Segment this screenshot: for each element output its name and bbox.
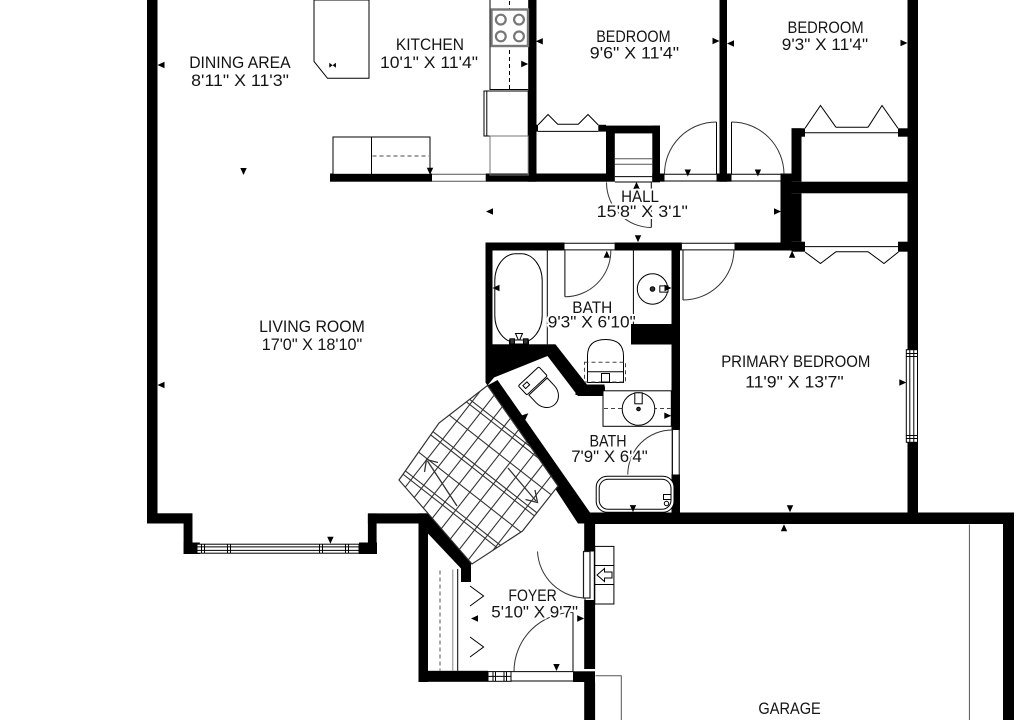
svg-text:8'11" X 11'3": 8'11" X 11'3" xyxy=(191,71,289,90)
svg-text:7'9" X 6'4": 7'9" X 6'4" xyxy=(571,447,648,466)
svg-text:9'3" X 11'4": 9'3" X 11'4" xyxy=(782,35,868,54)
svg-text:15'8" X 3'1": 15'8" X 3'1" xyxy=(597,202,688,221)
svg-text:DINING AREA: DINING AREA xyxy=(189,53,291,72)
svg-text:11'9" X 13'7": 11'9" X 13'7" xyxy=(745,373,844,392)
svg-text:10'1" X 11'4": 10'1" X 11'4" xyxy=(380,53,478,72)
svg-text:17'0" X 18'10": 17'0" X 18'10" xyxy=(262,335,363,354)
svg-text:9'6" X 11'4": 9'6" X 11'4" xyxy=(590,43,679,62)
svg-text:PRIMARY BEDROOM: PRIMARY BEDROOM xyxy=(721,352,870,371)
svg-text:5'10" X 9'7": 5'10" X 9'7" xyxy=(491,603,578,622)
svg-text:KITCHEN: KITCHEN xyxy=(396,35,464,54)
svg-text:GARAGE: GARAGE xyxy=(758,699,820,718)
svg-text:LIVING ROOM: LIVING ROOM xyxy=(259,317,365,336)
svg-text:9'3" X 6'10": 9'3" X 6'10" xyxy=(548,312,636,331)
